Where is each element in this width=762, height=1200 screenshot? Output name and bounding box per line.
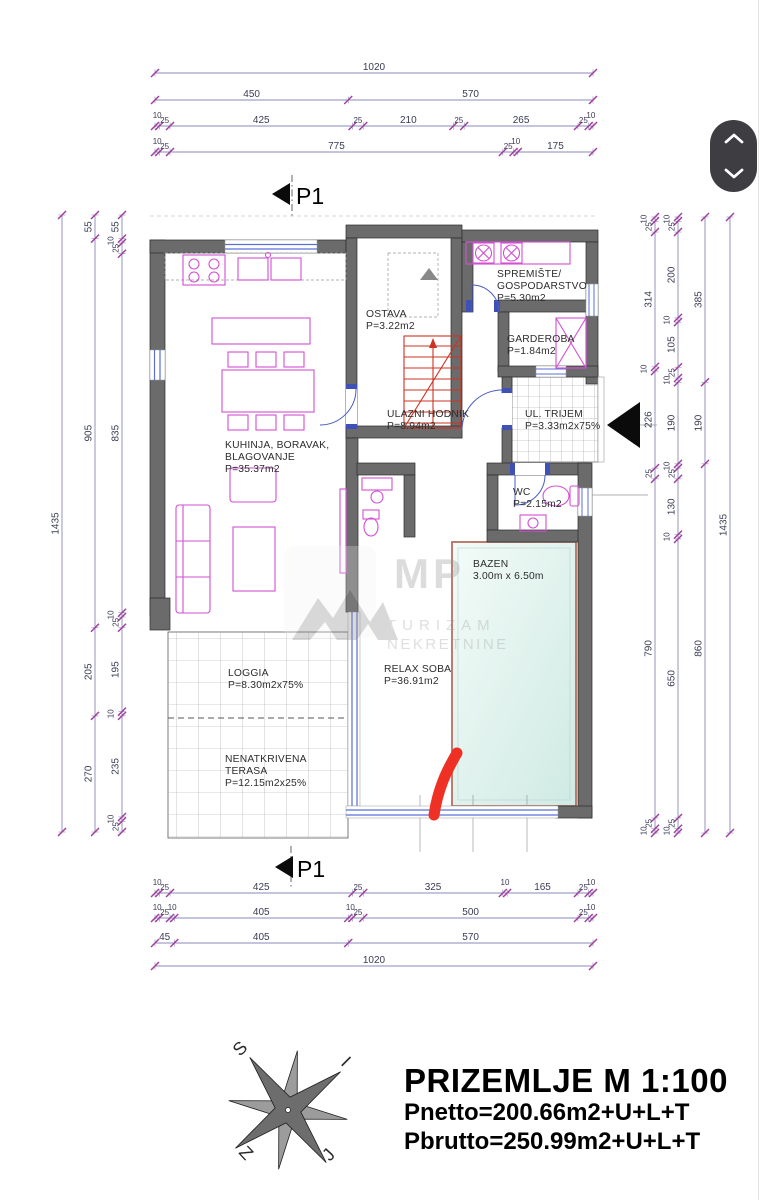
title-block: PRIZEMLJE M 1:100 Pnetto=200.66m2+U+L+T … bbox=[404, 1063, 728, 1156]
dim-label: 10 bbox=[663, 461, 672, 470]
dim-label: 105 bbox=[667, 336, 678, 353]
dim-label: 10 bbox=[586, 111, 595, 120]
room-label-bazen: 3.00m x 6.50m bbox=[473, 571, 544, 582]
dim-label: 860 bbox=[694, 640, 705, 657]
room-label-kuhinja: P=35.37m2 bbox=[225, 464, 280, 475]
room-label-bazen: BAZEN bbox=[473, 559, 508, 570]
dim-label: 25 bbox=[112, 617, 121, 626]
dim-label: 405 bbox=[253, 907, 270, 918]
dim-label: 226 bbox=[644, 411, 655, 428]
floor-plan-drawing: MP TURIZAM NEKRETNINE P1 P1 102045057010… bbox=[0, 0, 762, 1200]
dimension-line: 10252001010525101901025130106502510 bbox=[663, 213, 683, 837]
dimension-line: 10251040510255002510 bbox=[151, 903, 597, 922]
dim-label: 25 bbox=[668, 468, 677, 477]
dim-label: 55 bbox=[111, 221, 122, 233]
dim-label: 1020 bbox=[363, 955, 386, 966]
compass-letter-j: J bbox=[318, 1145, 339, 1165]
dim-label: 905 bbox=[84, 424, 95, 441]
dim-label: 385 bbox=[694, 291, 705, 308]
watermark-logo-text: MP bbox=[394, 550, 465, 597]
dimension-line: 55905205270 bbox=[84, 211, 100, 836]
dim-label: 10 bbox=[640, 214, 649, 223]
dim-label: 405 bbox=[253, 932, 270, 943]
dim-label: 235 bbox=[111, 758, 122, 775]
room-label-garderoba: GARDEROBA bbox=[507, 334, 575, 345]
dim-label: 775 bbox=[328, 141, 345, 152]
dim-label: 10 bbox=[663, 532, 672, 541]
dimension-line: 450570 bbox=[151, 89, 597, 104]
dim-label: 175 bbox=[547, 141, 564, 152]
room-label-ostava: P=3.22m2 bbox=[366, 321, 415, 332]
stairs bbox=[388, 253, 461, 428]
dim-label: 130 bbox=[667, 498, 678, 515]
dimension-line: 102542525210252652510 bbox=[151, 111, 597, 130]
dimension-line: 45405570 bbox=[151, 932, 597, 947]
room-label-kuhinja: BLAGOVANJE bbox=[225, 452, 295, 463]
room-label-kuhinja: KUHINJA, BORAVAK, bbox=[225, 440, 329, 451]
section-arrow-icon bbox=[272, 183, 290, 205]
dim-label: 165 bbox=[534, 882, 551, 893]
section-arrow-icon bbox=[275, 856, 293, 878]
dim-label: 10 bbox=[107, 814, 116, 823]
dimension-line: 10257752510175 bbox=[151, 137, 597, 156]
dim-label: 25 bbox=[454, 116, 463, 125]
dim-label: 25 bbox=[645, 468, 654, 477]
plan-title: PRIZEMLJE M 1:100 bbox=[404, 1063, 728, 1099]
dim-label: 25 bbox=[112, 243, 121, 252]
room-label-loggia: LOGGIA bbox=[228, 668, 269, 679]
dimension-line: 1020 bbox=[151, 62, 597, 77]
floorplan-page: MP TURIZAM NEKRETNINE P1 P1 102045057010… bbox=[0, 0, 762, 1200]
dim-label: 325 bbox=[425, 882, 442, 893]
dim-label: 25 bbox=[668, 368, 677, 377]
dim-label: 790 bbox=[644, 640, 655, 657]
dim-label: 25 bbox=[160, 116, 169, 125]
dim-label: 195 bbox=[111, 661, 122, 678]
dimension-line: 385190860 bbox=[694, 213, 710, 837]
dim-label: 425 bbox=[253, 115, 270, 126]
room-label-terasa: NENATKRIVENA bbox=[225, 754, 307, 765]
watermark-line2: NEKRETNINE bbox=[387, 636, 509, 653]
scroll-widget[interactable] bbox=[710, 120, 757, 192]
dim-label: 25 bbox=[645, 818, 654, 827]
dimension-line: 1435 bbox=[51, 211, 67, 836]
dim-label: 570 bbox=[462, 89, 479, 100]
section-marker-top: P1 bbox=[272, 175, 324, 216]
watermark-line1: TURIZAM bbox=[387, 617, 496, 634]
dim-label: 25 bbox=[353, 116, 362, 125]
dim-label: 25 bbox=[112, 822, 121, 831]
dim-label: 650 bbox=[667, 670, 678, 687]
compass-letter-s: S bbox=[229, 1037, 252, 1060]
plan-net-area: Pnetto=200.66m2+U+L+T bbox=[404, 1099, 728, 1127]
entrance-arrow-icon bbox=[607, 402, 640, 448]
room-label-relax: RELAX SOBA bbox=[384, 664, 451, 675]
dim-label: 1435 bbox=[51, 512, 62, 535]
dim-label: 10 bbox=[586, 903, 595, 912]
dim-label: 45 bbox=[159, 932, 171, 943]
dim-label: 1020 bbox=[363, 62, 386, 73]
room-label-terasa: TERASA bbox=[225, 766, 267, 777]
dim-label: 10 bbox=[663, 375, 672, 384]
stair-direction-arrow bbox=[420, 268, 438, 280]
compass-rose: S I J Z bbox=[219, 1037, 356, 1178]
dim-label: 25 bbox=[668, 222, 677, 231]
room-label-ul-trijem: UL. TRIJEM bbox=[525, 409, 583, 420]
room-label-garderoba: P=1.84m2 bbox=[507, 346, 556, 357]
dimension-line: 5510258351025195102351025 bbox=[107, 211, 127, 836]
scroll-down-button[interactable] bbox=[710, 157, 757, 189]
dim-label: 190 bbox=[694, 414, 705, 431]
dim-label: 25 bbox=[160, 883, 169, 892]
dim-label: 10 bbox=[640, 364, 649, 373]
page-edge-divider bbox=[758, 0, 759, 1200]
dim-label: 10 bbox=[663, 315, 672, 324]
dimension-line: 1435 bbox=[719, 213, 735, 837]
dim-label: 55 bbox=[84, 221, 95, 233]
room-label-wc: WC bbox=[513, 487, 531, 498]
dim-label: 190 bbox=[667, 414, 678, 431]
dim-label: 1435 bbox=[719, 513, 730, 536]
dim-label: 200 bbox=[667, 266, 678, 283]
dim-label: 25 bbox=[645, 222, 654, 231]
dim-label: 10 bbox=[107, 709, 116, 718]
dim-label: 25 bbox=[353, 908, 362, 917]
scroll-up-button[interactable] bbox=[710, 123, 757, 155]
dim-label: 314 bbox=[644, 291, 655, 308]
dim-label: 500 bbox=[462, 907, 479, 918]
dim-label: 10 bbox=[586, 878, 595, 887]
room-label-ul-trijem: P=3.33m2x75% bbox=[525, 421, 600, 432]
dim-label: 10 bbox=[640, 826, 649, 835]
compass-letter-i: I bbox=[337, 1053, 355, 1071]
dim-label: 570 bbox=[462, 932, 479, 943]
dim-label: 210 bbox=[400, 115, 417, 126]
dimension-line: 102542525325101652510 bbox=[151, 878, 597, 897]
room-label-terasa: P=12.15m2x25% bbox=[225, 778, 306, 789]
dim-label: 10 bbox=[663, 826, 672, 835]
dim-label: 25 bbox=[160, 142, 169, 151]
chevron-down-icon bbox=[723, 168, 745, 179]
section-marker-bottom: P1 bbox=[275, 846, 325, 888]
dim-label: 10 bbox=[168, 903, 177, 912]
dim-label: 270 bbox=[84, 765, 95, 782]
dim-label: 450 bbox=[243, 89, 260, 100]
dim-label: 205 bbox=[84, 663, 95, 680]
room-label-spremiste: SPREMIŠTE/ bbox=[497, 267, 561, 280]
room-label-wc: P=2.15m2 bbox=[513, 499, 562, 510]
room-label-loggia: P=8.30m2x75% bbox=[228, 680, 303, 691]
room-label-ulazni-hodnik: P=8.94m2 bbox=[387, 421, 436, 432]
room-label-spremiste: GOSPODARSTVO bbox=[497, 281, 587, 292]
dim-label: 25 bbox=[668, 818, 677, 827]
section-label: P1 bbox=[296, 183, 324, 209]
room-label-ostava: OSTAVA bbox=[366, 309, 407, 320]
dim-label: 10 bbox=[663, 214, 672, 223]
room-label-relax: P=36.91m2 bbox=[384, 676, 439, 687]
dimension-line: 102531410226257902510 bbox=[640, 213, 660, 837]
dim-label: 10 bbox=[107, 236, 116, 245]
dim-label: 835 bbox=[111, 424, 122, 441]
plan-gross-area: Pbrutto=250.99m2+U+L+T bbox=[404, 1128, 728, 1156]
chevron-up-icon bbox=[723, 133, 745, 144]
room-label-spremiste: P=5.30m2 bbox=[497, 293, 546, 304]
dim-label: 265 bbox=[513, 115, 530, 126]
dim-label: 25 bbox=[353, 883, 362, 892]
room-label-ulazni-hodnik: ULAZNI HODNIK bbox=[387, 409, 469, 420]
dimension-line: 1020 bbox=[151, 955, 597, 970]
dim-label: 10 bbox=[501, 878, 510, 887]
dim-label: 10 bbox=[107, 610, 116, 619]
section-label: P1 bbox=[297, 856, 325, 882]
dim-label: 425 bbox=[253, 882, 270, 893]
dim-label: 10 bbox=[511, 137, 520, 146]
